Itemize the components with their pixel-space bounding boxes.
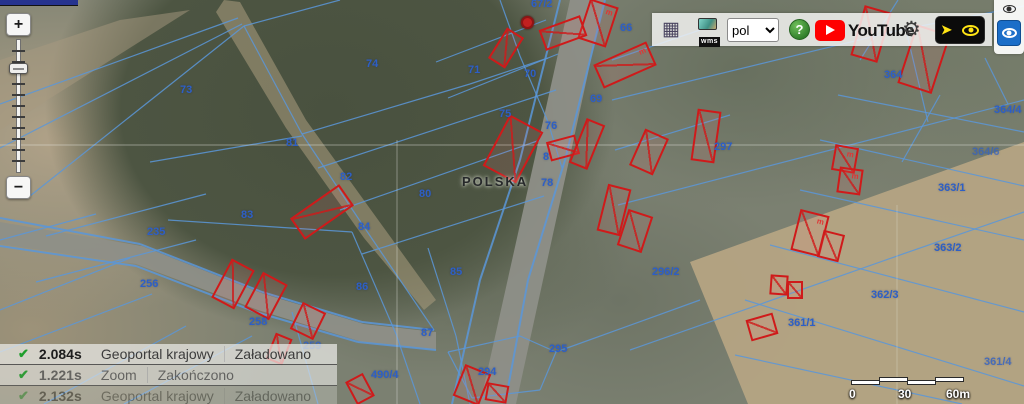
scale-segment <box>907 380 936 385</box>
scale-segment <box>851 380 880 385</box>
parcel-number-text: 71 <box>468 64 480 76</box>
parcel-number-label: 83 <box>241 209 253 221</box>
parcel-number-text: 362/3 <box>871 289 899 301</box>
parcel-number-label: 364/4 <box>994 104 1022 116</box>
parcel-number-text: 69 <box>590 93 602 105</box>
parcel-number-text: 297 <box>714 141 732 153</box>
parcel-number-label: 235 <box>147 226 165 238</box>
status-time: 1.221s <box>39 367 95 383</box>
parcel-number-text: 70 <box>524 68 536 80</box>
zoom-in-button[interactable]: + <box>6 13 31 36</box>
legend-grid-icon[interactable]: ▦ <box>662 20 680 39</box>
parcel-number-label: 71 <box>468 64 480 76</box>
parcel-number-text: 85 <box>450 266 462 278</box>
building-outline <box>485 382 510 404</box>
zoom-out-button[interactable]: − <box>6 176 31 199</box>
forest-track <box>216 0 436 310</box>
wms-thumbnail <box>698 18 717 30</box>
parcel-number-text: 87 <box>421 327 433 339</box>
eye-toggle-button[interactable] <box>997 20 1021 46</box>
parcel-number-label: 364 <box>884 69 902 81</box>
status-log-row: ✔ 2.132s Geoportal krajowy Załadowano <box>0 386 337 404</box>
status-source: Geoportal krajowy <box>101 388 214 404</box>
building-mark-label: m <box>851 171 859 181</box>
country-label: POLSKA <box>462 174 528 189</box>
parcel-number-text: 80 <box>419 188 431 200</box>
parcel-number-label: 296/2 <box>652 266 680 278</box>
status-message: Załadowano <box>224 388 311 404</box>
youtube-button[interactable]: YouTube <box>815 18 914 42</box>
scale-segment <box>935 377 964 382</box>
parcel-number-label: 8 <box>543 151 549 163</box>
parcel-number-label: 258 <box>249 316 267 328</box>
status-source: Geoportal krajowy <box>101 346 214 362</box>
status-log-row: ✔ 2.084s Geoportal krajowy Załadowano <box>0 344 337 365</box>
parcel-number-text: 364/4 <box>994 104 1022 116</box>
visibility-toggle-panel[interactable]: ➤ <box>935 16 985 44</box>
poi-marker[interactable] <box>521 16 534 29</box>
parcel-number-text: 78 <box>541 177 553 189</box>
side-panel <box>994 0 1024 54</box>
parcel-number-label: 363/1 <box>938 182 966 194</box>
parcel-number-label: 361/4 <box>984 356 1012 368</box>
parcel-number-text: 364 <box>884 69 902 81</box>
parcel-number-label: 81 <box>286 137 298 149</box>
parcel-number-label: 74 <box>366 58 378 70</box>
parcel-number-text: 361/4 <box>984 356 1012 368</box>
status-time: 2.132s <box>39 388 95 404</box>
map-viewport[interactable]: m m <box>0 0 1024 404</box>
parcel-number-label: 75 <box>499 108 511 120</box>
youtube-play-icon <box>815 20 845 41</box>
parcel-number-text: 74 <box>366 58 378 70</box>
building-outline: m <box>836 166 863 195</box>
settings-gear-icon[interactable]: ⚙ <box>902 17 921 42</box>
status-message: Zakończono <box>147 367 234 383</box>
parcel-number-text: 363/1 <box>938 182 966 194</box>
status-source: Zoom <box>101 367 137 383</box>
parcel-number-text: 361/1 <box>788 317 816 329</box>
parcel-number-text: 8 <box>543 151 549 163</box>
parcel-number-label: 490/4 <box>371 369 399 381</box>
parcel-number-label: 67/2 <box>531 0 552 10</box>
zoom-control: + − <box>6 13 32 199</box>
parcel-number-text: 490/4 <box>371 369 399 381</box>
parcel-number-label: 363/2 <box>934 242 962 254</box>
scale-bar <box>851 377 969 386</box>
parcel-number-label: 361/1 <box>788 317 816 329</box>
parcel-number-label: 364/6 <box>972 146 1000 158</box>
parcel-number-text: 67/2 <box>531 0 552 10</box>
parcel-number-text: 86 <box>356 281 368 293</box>
parcel-number-text: 295 <box>549 343 567 355</box>
eye-icon-small[interactable] <box>1003 5 1016 13</box>
parcel-number-text: 81 <box>286 137 298 149</box>
panel-fragment <box>0 0 78 6</box>
parcel-number-label: 73 <box>180 84 192 96</box>
check-icon: ✔ <box>18 346 29 362</box>
parcel-number-label: 78 <box>541 177 553 189</box>
pan-arrow-icon: ➤ <box>941 22 952 38</box>
zoom-slider-track[interactable] <box>12 39 25 173</box>
wms-layers-icon[interactable]: wms <box>698 18 720 42</box>
scale-segment <box>879 377 908 382</box>
check-icon: ✔ <box>18 367 29 383</box>
eye-icon-yellow <box>962 25 979 36</box>
parcel-number-label: 80 <box>419 188 431 200</box>
language-select[interactable]: pol <box>727 18 779 42</box>
parcel-number-text: 82 <box>340 171 352 183</box>
parcel-number-label: 66 <box>620 22 632 34</box>
parcel-number-label: 82 <box>340 171 352 183</box>
status-message: Załadowano <box>224 346 311 362</box>
parcel-number-text: 363/2 <box>934 242 962 254</box>
parcel-number-text: 76 <box>545 120 557 132</box>
parcel-number-label: 362/3 <box>871 289 899 301</box>
status-time: 2.084s <box>39 346 95 362</box>
parcel-number-text: 73 <box>180 84 192 96</box>
parcel-number-label: 256 <box>140 278 158 290</box>
eye-icon-white <box>1002 28 1017 38</box>
building-outline <box>769 274 788 295</box>
parcel-number-text: 83 <box>241 209 253 221</box>
building-mark-label: m <box>637 46 647 57</box>
status-log-row: ✔ 1.221s Zoom Zakończono <box>0 365 337 386</box>
parcel-number-text: 75 <box>499 108 511 120</box>
status-log: ✔ 2.084s Geoportal krajowy Załadowano ✔ … <box>0 344 337 404</box>
help-button[interactable]: ? <box>789 19 810 40</box>
building-mark-label: m <box>846 149 855 159</box>
parcel-number-text: 256 <box>140 278 158 290</box>
parcel-number-label: 85 <box>450 266 462 278</box>
parcel-number-text: 364/6 <box>972 146 1000 158</box>
top-toolbar: ▦ wms pol ? YouTube ⚙ ➤ <box>652 13 992 46</box>
parcel-number-label: 294 <box>478 366 496 378</box>
parcel-number-label: 297 <box>714 141 732 153</box>
building-mark-label: m <box>604 7 614 18</box>
parcel-number-text: 84 <box>358 221 370 233</box>
building-outline <box>787 281 803 299</box>
parcel-number-label: 87 <box>421 327 433 339</box>
building-mark-label: m <box>816 216 825 226</box>
check-icon: ✔ <box>18 388 29 404</box>
parcel-number-text: 258 <box>249 316 267 328</box>
parcel-number-label: 295 <box>549 343 567 355</box>
parcel-number-label: 84 <box>358 221 370 233</box>
parcel-number-text: 66 <box>620 22 632 34</box>
zoom-slider-handle[interactable] <box>9 63 28 74</box>
parcel-number-label: 70 <box>524 68 536 80</box>
parcel-number-text: 296/2 <box>652 266 680 278</box>
parcel-number-label: 76 <box>545 120 557 132</box>
parcel-number-label: 86 <box>356 281 368 293</box>
parcel-number-label: 69 <box>590 93 602 105</box>
wms-label: wms <box>699 37 720 47</box>
parcel-number-text: 294 <box>478 366 496 378</box>
parcel-number-text: 235 <box>147 226 165 238</box>
zoom-slider-ticks <box>12 41 25 171</box>
